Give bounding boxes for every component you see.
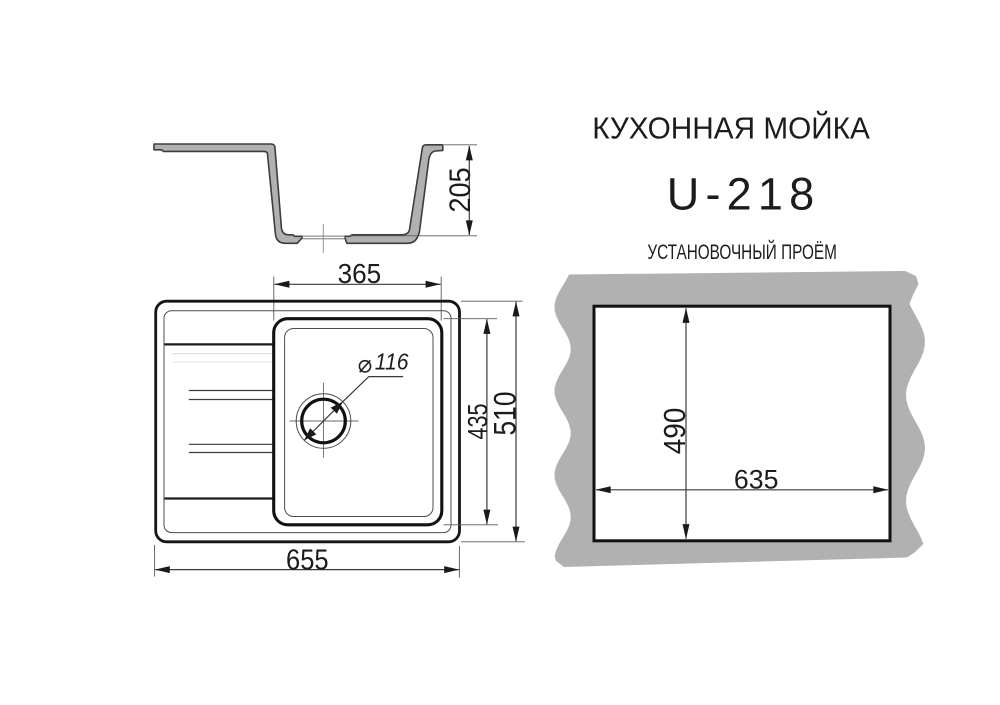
svg-text:635: 635 bbox=[734, 464, 779, 494]
svg-text:УСТАНОВОЧНЫЙ ПРОЁМ: УСТАНОВОЧНЫЙ ПРОЁМ bbox=[647, 239, 837, 263]
svg-text:116: 116 bbox=[375, 349, 409, 375]
svg-text:205: 205 bbox=[443, 167, 476, 212]
svg-text:490: 490 bbox=[659, 408, 692, 455]
svg-text:510: 510 bbox=[488, 392, 523, 436]
svg-text:U-218: U-218 bbox=[667, 169, 821, 220]
svg-text:КУХОННАЯ МОЙКА: КУХОННАЯ МОЙКА bbox=[592, 111, 870, 146]
svg-text:655: 655 bbox=[286, 544, 328, 576]
svg-text:365: 365 bbox=[338, 258, 382, 289]
